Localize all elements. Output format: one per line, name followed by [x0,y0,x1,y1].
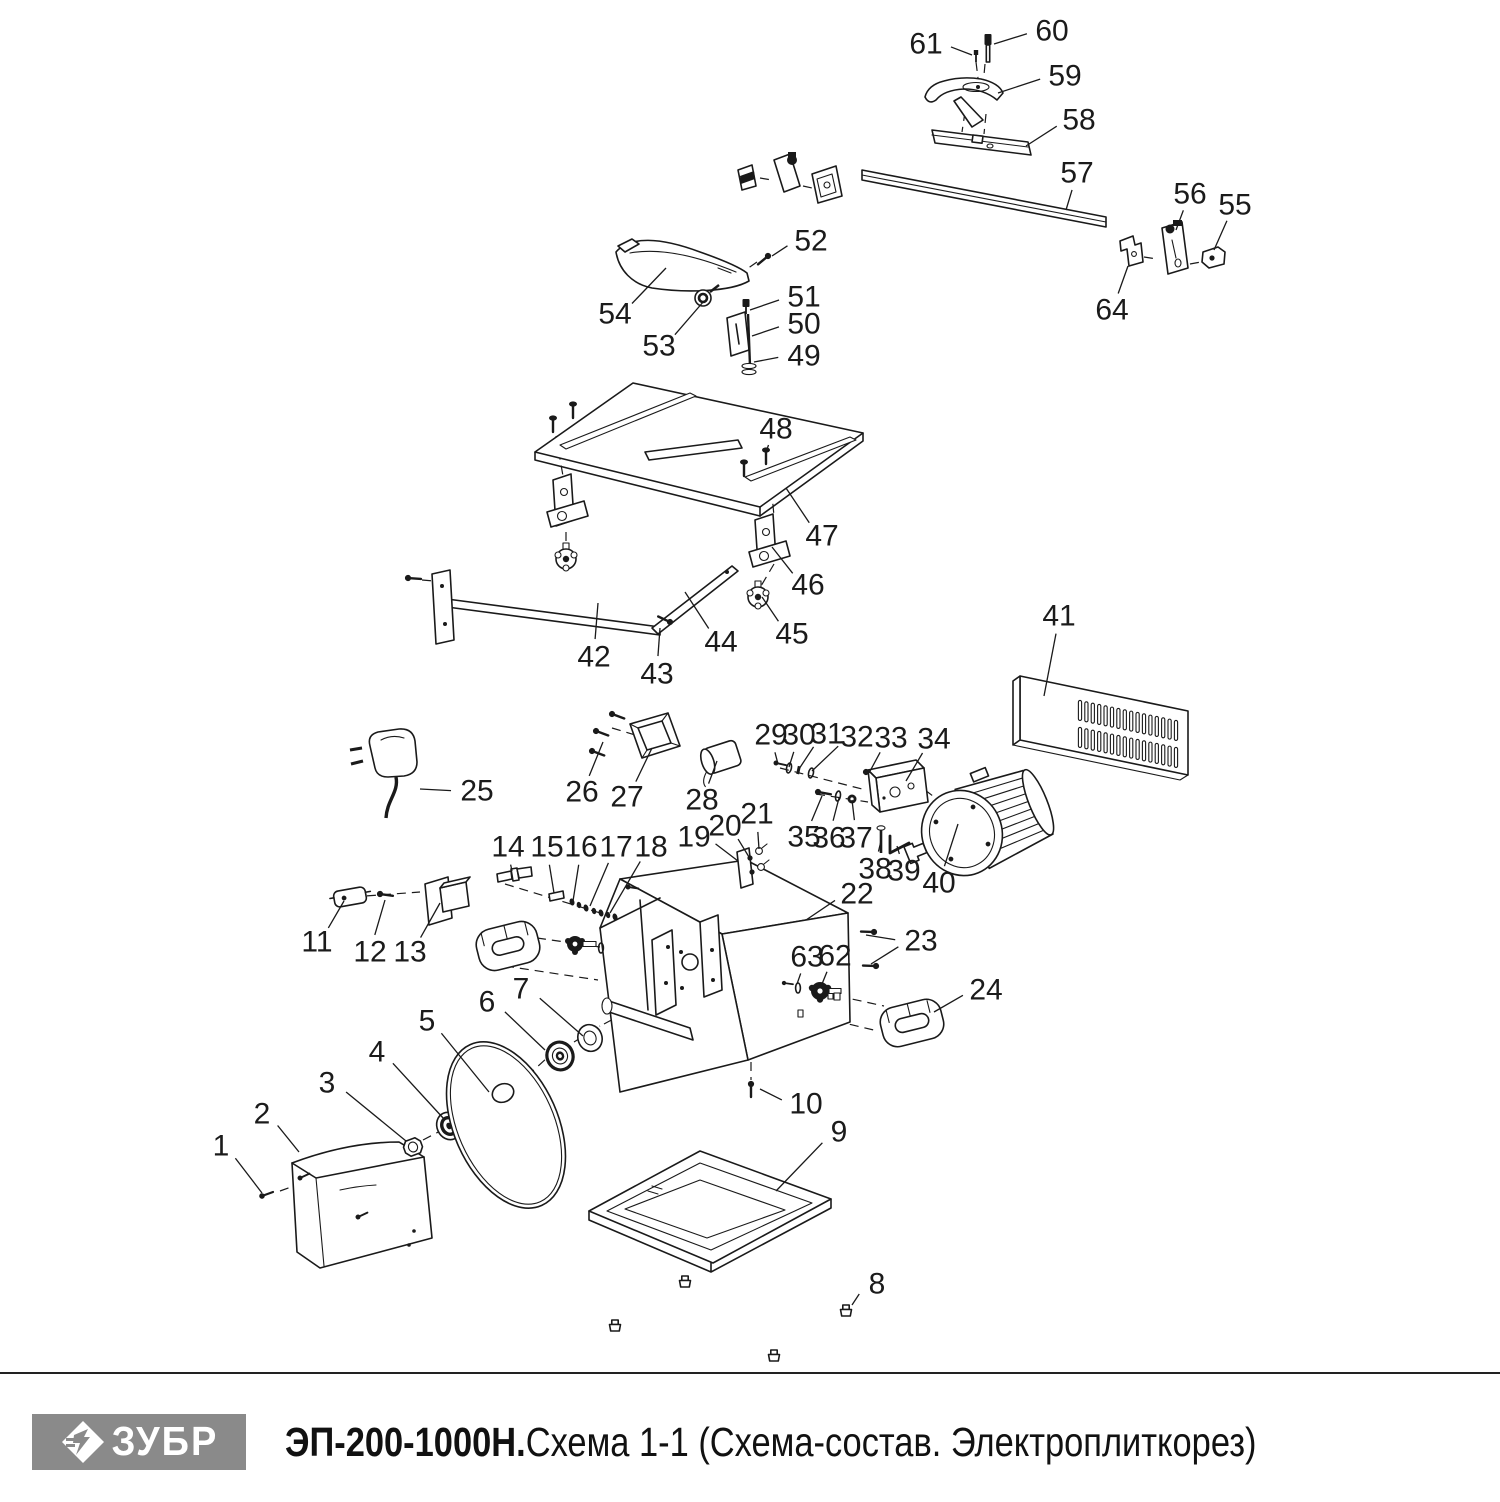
leader-line-23 [866,935,895,940]
part-label-63: 63 [790,941,823,974]
leader-line-59 [998,79,1040,93]
exploded-parts-diagram: 1234567891011121314151617181920212223242… [0,0,1500,1372]
part-label-16: 16 [564,831,597,864]
part-number-labels: 1234567891011121314151617181920212223242… [213,15,1252,1306]
model-number: ЭП-200-1000Н. [285,1419,526,1466]
part-label-3: 3 [319,1067,336,1100]
part-label-41: 41 [1042,600,1075,633]
leader-line-4 [393,1063,444,1119]
part-label-39: 39 [887,855,920,888]
part-label-48: 48 [759,413,792,446]
leader-line-64 [1118,266,1128,293]
part-55-block [1202,247,1225,268]
part-44-rail [652,566,738,634]
part-label-13: 13 [393,936,426,969]
schematic-title: ЭП-200-1000Н. Схема 1-1 (Схема-состав. Э… [285,1414,1256,1470]
part-22-housing [600,860,850,1092]
part-49-50-51-riving-knife [727,299,756,375]
leader-line-2 [278,1125,299,1152]
leader-line-8 [852,1294,859,1305]
leader-line-21 [758,832,759,849]
part-label-15: 15 [530,831,563,864]
part-label-40: 40 [922,867,955,900]
part-9-water-tray [589,1151,831,1272]
leader-line-58 [1026,126,1057,146]
leader-line-3 [346,1092,406,1141]
leader-line-15 [549,865,554,893]
part-label-55: 55 [1218,189,1251,222]
part-label-9: 9 [831,1116,848,1149]
zubr-logo-icon [60,1419,106,1465]
brand-logo: ЗУБР [32,1414,246,1470]
leader-line-10 [760,1089,782,1100]
leader-line-36 [833,798,839,821]
part-label-49: 49 [787,340,820,373]
part-12-screw [376,890,393,898]
part-7-washer [574,1021,606,1055]
part-11-thermal-switch [329,885,372,908]
part-8-feet [610,1276,852,1361]
leader-line-17 [590,863,608,906]
leader-line-16 [573,865,579,901]
part-label-52: 52 [794,225,827,258]
blade-guard-assembly [616,239,772,375]
leader-line-1 [235,1158,262,1193]
leader-line-23 [871,947,898,964]
part-label-28: 28 [685,784,718,817]
part-64-bracket [1120,236,1143,266]
leader-line-26 [589,742,603,776]
leader-line-25 [420,789,451,791]
part-29-32-fasteners [773,760,814,778]
fence-clamp-cluster [738,152,842,203]
leader-line-52 [772,246,787,256]
part-label-47: 47 [805,520,838,553]
part-label-17: 17 [599,831,632,864]
part-10-screw [748,1081,754,1097]
part-42-rail [405,570,660,644]
part-label-54: 54 [598,298,631,331]
table-assembly [405,383,863,644]
leader-line-49 [754,357,778,362]
part-41-vent-panel [1013,676,1188,780]
part-label-12: 12 [353,936,386,969]
cutting-assembly [258,1021,605,1268]
part-45-knobs [555,543,769,609]
part-label-46: 46 [791,569,824,602]
leader-line-24 [934,995,963,1012]
part-label-57: 57 [1060,157,1093,190]
part-label-43: 43 [640,658,673,691]
part-label-1: 1 [213,1130,230,1163]
part-27-switch-frame [630,713,680,758]
part-56-clamp [1162,220,1188,274]
base-parts [589,1151,852,1361]
part-2-blade-cover [292,1142,432,1268]
part-58-guide-plate [932,130,1031,155]
part-54-blade-guard [616,239,749,291]
part-24-handle [877,996,947,1050]
leader-line-53 [675,301,704,335]
part-label-51: 51 [787,281,820,314]
part-label-59: 59 [1048,60,1081,93]
part-label-27: 27 [610,781,643,814]
part-15-18-spring-washers [549,891,618,921]
leader-line-35 [812,796,822,821]
part-23-screws [861,928,879,969]
part-label-42: 42 [577,641,610,674]
part-label-31: 31 [810,718,843,751]
part-label-25: 25 [460,775,493,808]
part-label-44: 44 [704,626,737,659]
leader-line-61 [951,47,972,55]
part-label-33: 33 [874,722,907,755]
part-label-45: 45 [775,618,808,651]
brand-logo-text: ЗУБР [112,1419,219,1465]
part-14-pin [497,867,532,882]
leader-line-9 [776,1143,822,1191]
part-label-60: 60 [1035,15,1068,48]
leader-line-60 [994,34,1027,44]
leader-line-6 [505,1012,545,1050]
part-label-37: 37 [839,822,872,855]
part-label-8: 8 [869,1268,886,1301]
part-38-pin [877,826,885,853]
part-label-32: 32 [840,721,873,754]
part-25-power-plug [350,729,417,818]
leader-line-47 [786,488,809,523]
part-28-capacitor [694,739,745,786]
left-handle [473,918,543,974]
part-label-34: 34 [917,723,950,756]
leader-line-57 [1066,190,1072,210]
leader-line-51 [750,300,779,310]
leader-line-7 [540,998,583,1036]
leader-line-50 [752,327,779,336]
part-label-53: 53 [642,330,675,363]
part-label-18: 18 [634,831,667,864]
part-label-4: 4 [369,1036,386,1069]
leader-line-55 [1214,221,1227,250]
left-knob-washer [565,936,603,955]
page: { "meta": { "width": 1500, "height": 150… [0,0,1500,1500]
part-label-64: 64 [1095,294,1128,327]
part-60-screw [985,34,992,62]
part-61-screw [974,50,978,62]
part-26-screws [588,710,625,758]
part-label-61: 61 [909,28,942,61]
part-label-58: 58 [1062,104,1095,137]
leader-line-19 [716,844,738,861]
part-label-24: 24 [969,974,1002,1007]
footer: ЗУБР ЭП-200-1000Н. Схема 1-1 (Схема-сост… [0,1372,1500,1502]
part-34-terminal-box [868,760,928,812]
part-label-26: 26 [565,776,598,809]
part-35-37-fasteners [814,788,856,803]
part-47-table [535,383,863,516]
part-label-23: 23 [904,925,937,958]
leader-line-12 [375,900,385,935]
part-52-screw [756,252,772,267]
part-label-2: 2 [254,1098,271,1131]
schematic-subtitle: Схема 1-1 (Схема-состав. Электроплиткоре… [526,1419,1257,1466]
part-label-7: 7 [513,973,530,1006]
part-label-11: 11 [301,926,332,959]
part-label-5: 5 [419,1005,436,1038]
part-label-6: 6 [479,986,496,1019]
part-label-10: 10 [789,1088,822,1121]
part-6-inner-flange [543,1038,577,1073]
part-label-19: 19 [677,821,710,854]
part-label-14: 14 [491,831,524,864]
part-label-21: 21 [740,798,773,831]
part-label-56: 56 [1173,178,1206,211]
